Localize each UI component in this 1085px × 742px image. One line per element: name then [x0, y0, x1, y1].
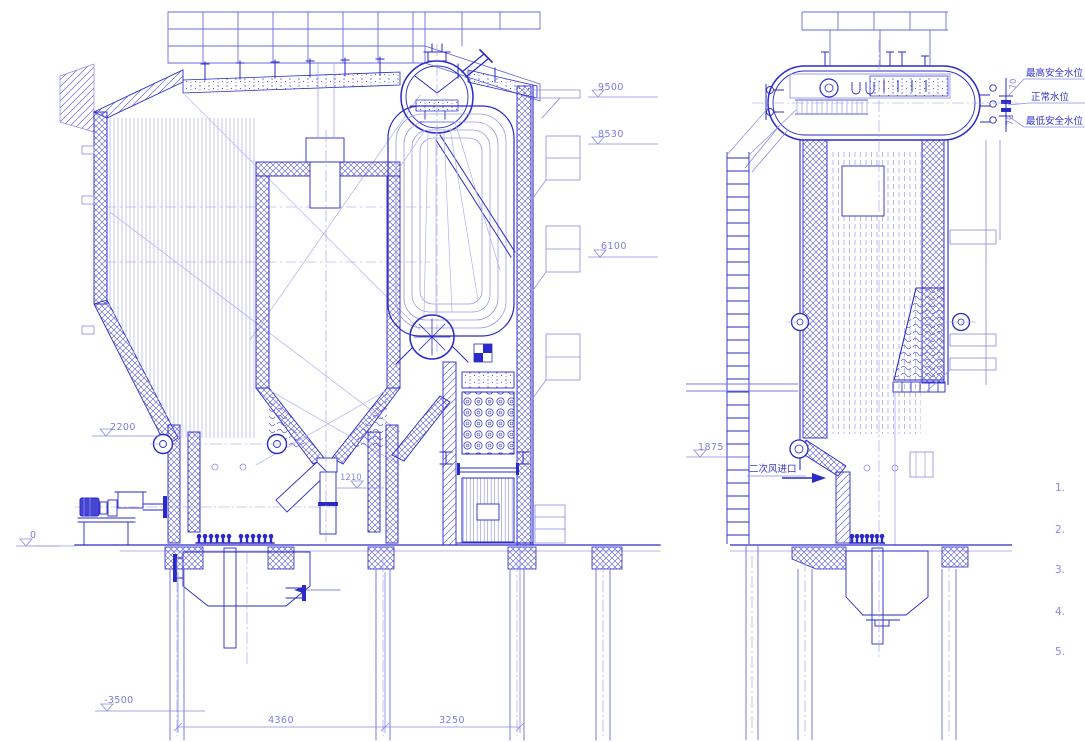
drawing-svg: 9500 8530 6100 2200 0 -3500 1210 1875 43…: [0, 0, 1085, 742]
note-5: 5.: [1055, 646, 1065, 658]
elev-1875-label: 1875: [698, 442, 724, 453]
elev-8530-label: 8530: [598, 129, 624, 140]
dim-1210-label: 1210: [340, 473, 362, 483]
dim-4360-label: 4360: [268, 715, 294, 726]
note-2: 2.: [1055, 524, 1065, 536]
note-4: 4.: [1055, 606, 1065, 618]
economizer: [462, 392, 514, 454]
offset-70-lower-label: 70: [1006, 115, 1016, 126]
elev-neg3500-label: -3500: [104, 695, 134, 706]
elev-0-label: 0: [30, 530, 36, 541]
elev-2200-label: 2200: [110, 422, 136, 433]
elev-9500-label: 9500: [598, 82, 624, 93]
water-low-label: 最低安全水位: [1026, 115, 1084, 127]
access-opening: [842, 166, 884, 216]
offset-70-upper-label: 70: [1009, 79, 1019, 90]
boiler-ga-drawing: 9500 8530 6100 2200 0 -3500 1210 1875 43…: [0, 0, 1085, 742]
feeder-motor: [80, 498, 99, 516]
note-3: 3.: [1055, 564, 1065, 576]
water-high-label: 最高安全水位: [1026, 67, 1084, 79]
elev-6100-label: 6100: [601, 241, 627, 252]
section-checker-symbol: [474, 344, 492, 362]
dim-3250-label: 3250: [439, 715, 465, 726]
secondary-air-label: 二次风进口: [749, 463, 797, 475]
water-normal-label: 正常水位: [1031, 91, 1070, 103]
note-1: 1.: [1055, 482, 1065, 494]
